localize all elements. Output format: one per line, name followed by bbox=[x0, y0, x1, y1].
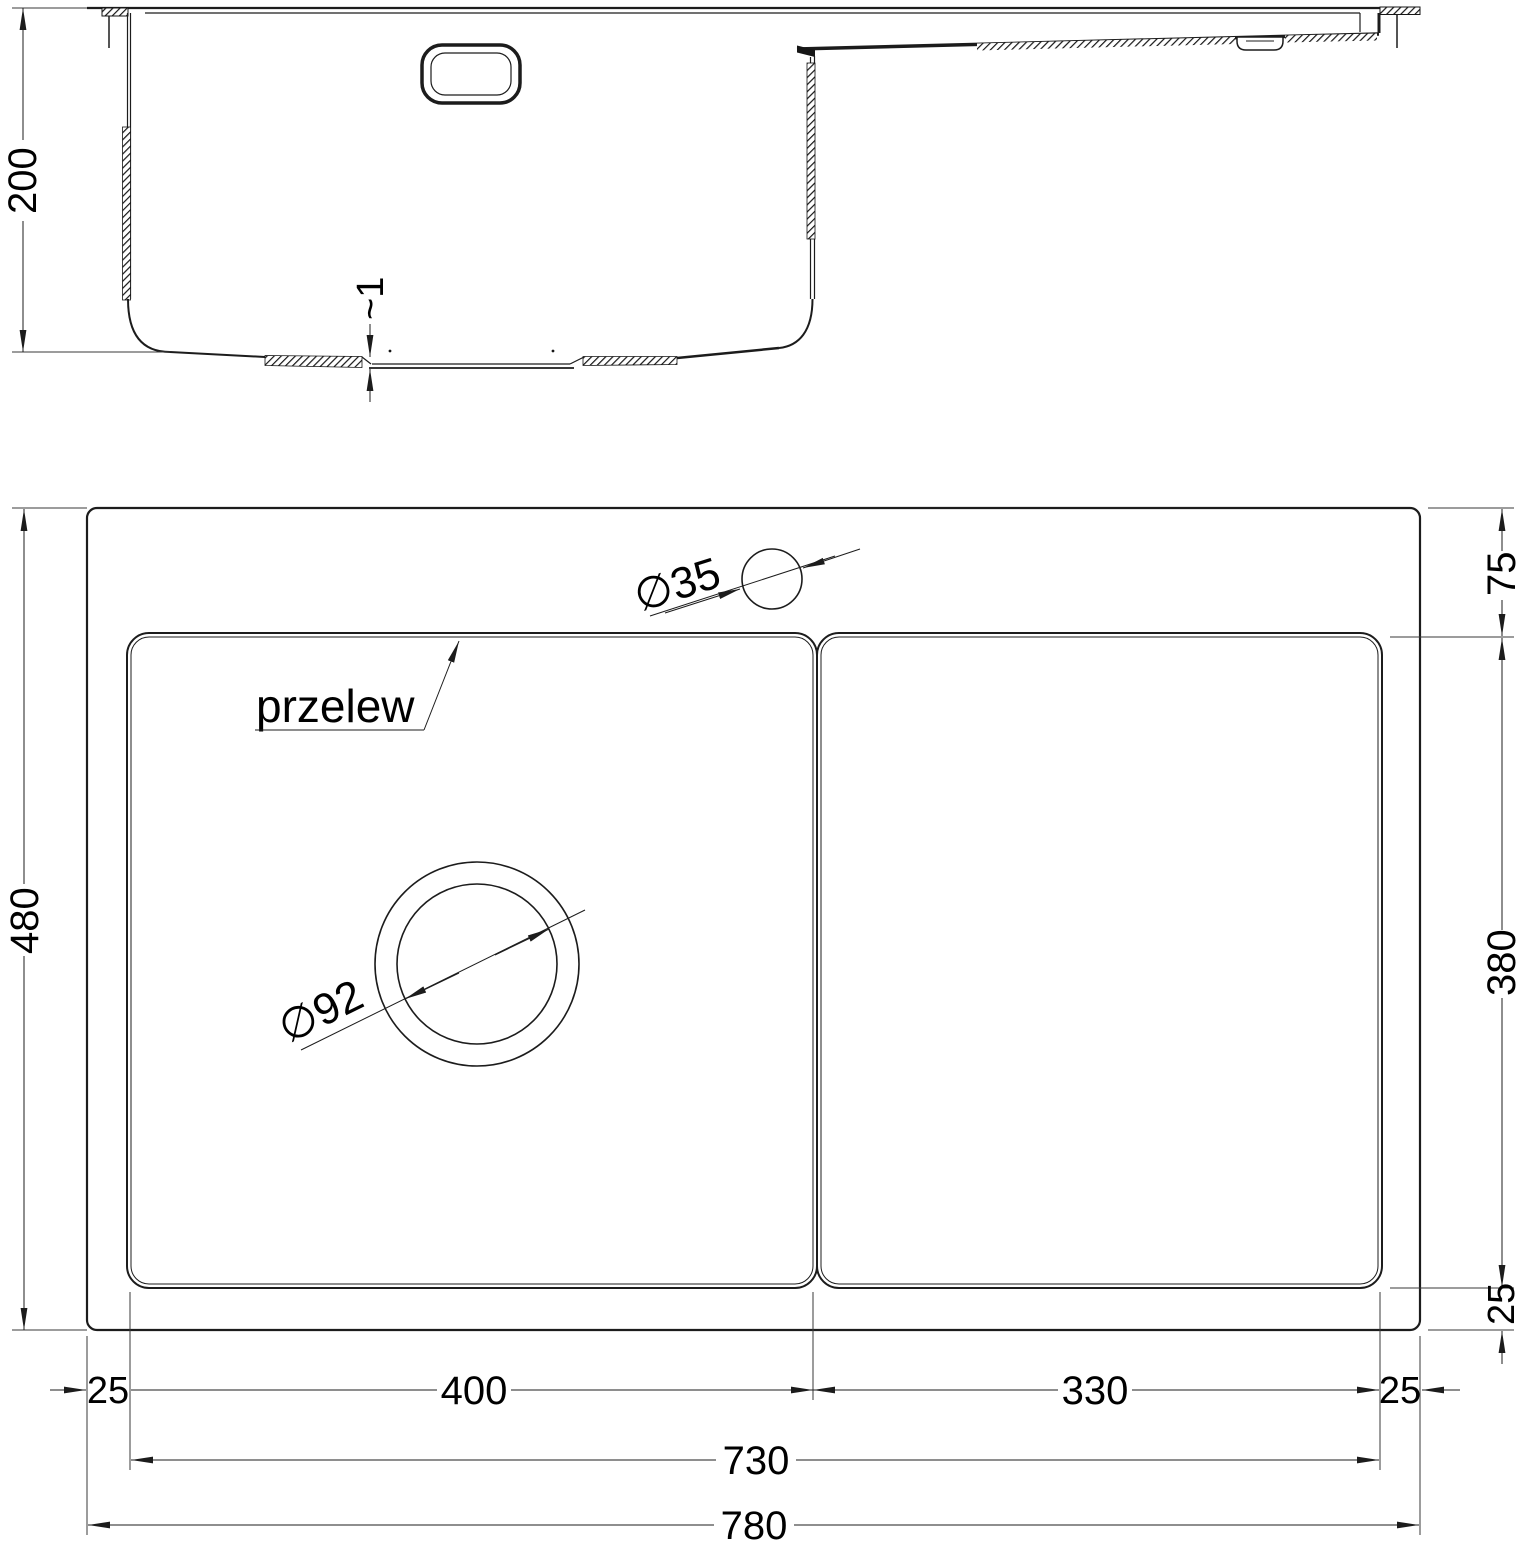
overflow-callout: przelew bbox=[255, 641, 459, 732]
section-recess-mark-left bbox=[389, 350, 392, 353]
section-left-lip-hatch bbox=[102, 8, 128, 16]
section-recess-step-left bbox=[362, 357, 371, 364]
dim-top-rim-75: 75 bbox=[1480, 509, 1524, 636]
technical-drawing-page: 200 ~1 ∅92 bbox=[0, 0, 1528, 1549]
dim-bottom-step: ~1 bbox=[350, 277, 392, 402]
section-bowl-corner-right bbox=[779, 299, 813, 348]
section-bottom-left-hatch bbox=[265, 356, 362, 368]
dim-right-rim-25-text: 25 bbox=[1379, 1370, 1421, 1412]
dim-inner-width-730: 730 bbox=[131, 1439, 1379, 1483]
dim-inner-width-730-text: 730 bbox=[723, 1439, 790, 1483]
dim-left-rim-25-text: 25 bbox=[87, 1370, 129, 1412]
dim-height-480-text: 480 bbox=[3, 887, 47, 954]
section-recess-step-right bbox=[570, 358, 583, 365]
dim-drainboard-width-330-text: 330 bbox=[1062, 1369, 1129, 1413]
section-left-wall-hatch bbox=[123, 127, 131, 300]
plan-view: ∅92 ∅35 przelew 480 bbox=[3, 508, 1524, 1548]
overflow-label-text: przelew bbox=[256, 680, 415, 732]
section-bottom-left-slope bbox=[170, 352, 265, 357]
dim-bowl-width-400-text: 400 bbox=[441, 1369, 508, 1413]
faucet-hole-circle bbox=[742, 549, 802, 609]
drain-flange-circle bbox=[375, 862, 579, 1066]
section-overflow-channel bbox=[1237, 37, 1283, 50]
dim-width-780-text: 780 bbox=[721, 1504, 788, 1548]
section-view: 200 ~1 bbox=[1, 7, 1420, 402]
section-right-bowl-wall-hatch bbox=[807, 63, 815, 239]
section-bowl-corner-left bbox=[128, 299, 170, 352]
dim-drain-diameter: ∅92 bbox=[271, 910, 585, 1053]
section-bottom-right-slope bbox=[677, 348, 779, 358]
dim-bowl-height-380: 380 bbox=[1480, 638, 1524, 1287]
dim-row-segments: 25 400 330 25 bbox=[50, 1369, 1460, 1413]
section-right-lip-hatch bbox=[1380, 7, 1420, 15]
section-bottom-right-hatch bbox=[583, 357, 677, 366]
sink-technical-drawing: 200 ~1 ∅92 bbox=[0, 0, 1528, 1549]
drain-hole-circle bbox=[397, 884, 557, 1044]
dim-bottom-step-text: ~1 bbox=[350, 277, 392, 320]
plan-bowl-rect-outer bbox=[127, 633, 817, 1288]
plan-outer-rect bbox=[87, 508, 1420, 1330]
dim-width-780: 780 bbox=[88, 1504, 1419, 1548]
dim-top-rim-75-text: 75 bbox=[1480, 552, 1524, 597]
section-recess-mark-right bbox=[552, 350, 555, 353]
section-drainboard-hatch-1 bbox=[977, 37, 1235, 51]
plan-bowl-rect-inner bbox=[131, 637, 813, 1284]
section-overflow-opening-inner bbox=[431, 53, 511, 95]
dim-height-480: 480 bbox=[3, 508, 87, 1330]
dim-bowl-height-380-text: 380 bbox=[1480, 929, 1524, 996]
dim-bottom-rim-25: 25 bbox=[1481, 1283, 1523, 1364]
plan-drainboard-rect-outer bbox=[817, 633, 1382, 1288]
dim-depth-200: 200 bbox=[1, 8, 170, 352]
dim-faucet-diameter-text: ∅35 bbox=[628, 548, 726, 621]
dim-depth-200-text: 200 bbox=[1, 147, 45, 214]
section-overflow-opening-outer bbox=[422, 45, 520, 103]
dim-faucet-diameter: ∅35 bbox=[628, 548, 860, 621]
dim-bottom-rim-25-text: 25 bbox=[1481, 1283, 1523, 1325]
plan-drainboard-rect-inner bbox=[821, 637, 1378, 1284]
